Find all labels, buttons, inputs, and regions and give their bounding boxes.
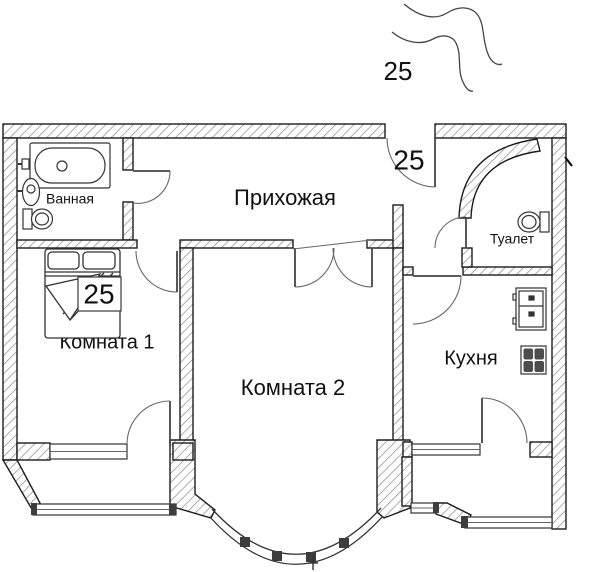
wall-hall-stub	[393, 205, 403, 248]
door-arc-icon	[482, 398, 527, 443]
wall-band-b	[180, 240, 293, 248]
top-label-25: 25	[384, 56, 413, 86]
room-label-kitchen: Кухня	[444, 347, 498, 369]
bow-inner-line	[212, 508, 381, 554]
room-label-room2: Комната 2	[241, 375, 346, 400]
wall-room1-bottom-b	[173, 443, 193, 460]
bow-post	[306, 552, 316, 562]
bow-post	[240, 537, 250, 547]
wall-bathroom-right-upper	[123, 138, 133, 170]
wall-kitchen-balcony-left	[402, 457, 412, 506]
floor-plan-svg: Ванная Прихожая Туалет Комната 1 Комната…	[0, 0, 600, 572]
bow-outer-line	[210, 516, 383, 564]
door-arc-icon	[295, 248, 334, 287]
bow-post	[272, 551, 282, 561]
room-label-hallway: Прихожая	[234, 185, 336, 210]
floor-plan: Ванная Прихожая Туалет Комната 1 Комната…	[0, 0, 600, 572]
wall-toilet-curved	[459, 139, 540, 218]
wall-kitchen-top-b	[463, 267, 552, 275]
door-arc-icon	[333, 248, 372, 287]
wall-kitchen-bottom-a	[403, 442, 412, 457]
wall-toilet-stub	[462, 248, 472, 267]
wall-room2-right	[393, 248, 403, 443]
fridge-icon	[513, 288, 546, 330]
stove-icon	[521, 346, 546, 374]
door-transom-line	[293, 240, 371, 249]
bow-post	[339, 538, 349, 548]
entrance-label-25: 25	[393, 144, 424, 175]
door-arc-icon	[136, 251, 177, 292]
toilet-icon	[23, 209, 53, 229]
door-arc-icon	[413, 276, 461, 324]
windows	[31, 444, 552, 528]
wall-left	[3, 138, 17, 460]
wall-top-right	[435, 124, 566, 138]
door-arc-icon	[127, 401, 170, 444]
wall-bathroom-right-lower	[123, 202, 133, 240]
wall-room1-bottom-a	[17, 443, 50, 460]
sink-icon	[17, 179, 40, 206]
wall-kitchen-top-a	[403, 267, 413, 275]
squiggle-line	[404, 4, 502, 65]
wall-band-a	[17, 240, 137, 248]
toilet-icon	[518, 212, 549, 232]
wall-top-left	[3, 124, 385, 138]
bow-window	[210, 508, 383, 570]
bed-label-25: 25	[83, 278, 114, 309]
wall-room1-right	[180, 248, 193, 443]
room-label-bathroom: Ванная	[46, 191, 94, 207]
wall-right	[552, 138, 566, 529]
wall-kitchen-bottom-b	[530, 442, 552, 457]
door-arc-icon	[435, 217, 466, 248]
door-arc-icon	[133, 171, 170, 203]
room-label-toilet: Туалет	[490, 231, 535, 247]
